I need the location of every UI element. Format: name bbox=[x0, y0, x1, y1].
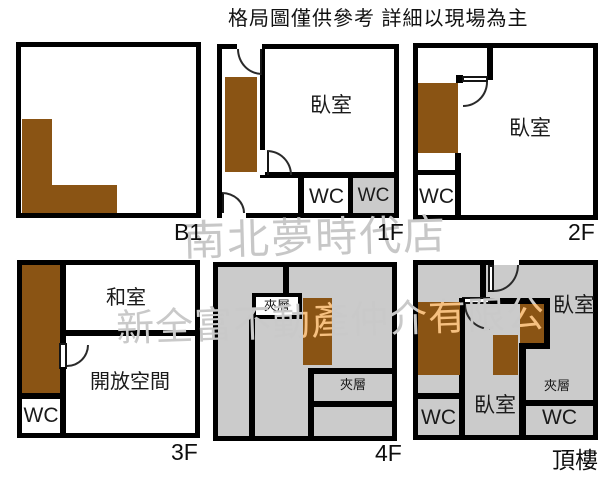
wall bbox=[480, 265, 486, 298]
staircase bbox=[418, 302, 460, 375]
room-label-bedroom-top: 臥室 bbox=[524, 295, 615, 317]
door-leaf bbox=[59, 343, 67, 369]
floor-label-4f: 4F bbox=[375, 440, 402, 467]
staircase bbox=[22, 265, 60, 393]
door-swing-icon bbox=[267, 150, 292, 175]
staircase bbox=[418, 83, 458, 153]
door-leaf bbox=[462, 297, 490, 304]
staircase bbox=[225, 77, 257, 172]
floor-plan-1f: 臥室 WC WC bbox=[217, 44, 399, 218]
staircase bbox=[22, 185, 117, 213]
room-label-wc: WC bbox=[418, 186, 455, 208]
floor-label-roof: 頂樓 bbox=[552, 441, 598, 475]
floor-label-3f: 3F bbox=[171, 439, 198, 466]
floor-plan-b1 bbox=[16, 42, 201, 218]
room-label-bedroom: 臥室 bbox=[480, 118, 580, 140]
wall bbox=[298, 172, 304, 213]
room-label-wc-left: WC bbox=[305, 186, 348, 208]
room-label-mezzanine-upper: 夾層 bbox=[264, 298, 290, 313]
room-label-wc-right: WC bbox=[353, 186, 394, 206]
door-swing-icon bbox=[222, 192, 245, 213]
floor-plan-4f: 夾層 夾層 bbox=[213, 262, 397, 441]
wall bbox=[314, 401, 392, 407]
room-label-tatami: 和室 bbox=[76, 288, 176, 309]
door-swing-icon bbox=[237, 49, 262, 75]
wall bbox=[455, 153, 461, 215]
door-swing-icon bbox=[463, 82, 488, 107]
staircase bbox=[303, 298, 332, 365]
floor-label-1f: 1F bbox=[377, 219, 404, 246]
wall bbox=[60, 330, 195, 336]
page-title: 格局圖僅供參考 詳細以現場為主 bbox=[228, 2, 529, 31]
room-label-open-space: 開放空間 bbox=[60, 372, 200, 393]
floor-plan-2f: 臥室 WC bbox=[413, 43, 598, 220]
room-label-wc-right: WC bbox=[526, 407, 593, 429]
floor-label-2f: 2F bbox=[568, 219, 595, 246]
door-swing-icon bbox=[67, 345, 89, 367]
door-swing-icon bbox=[494, 265, 519, 292]
wall bbox=[418, 170, 456, 175]
floor-plan-roof: 臥室 臥室 夾層 WC WC bbox=[413, 260, 598, 440]
wall bbox=[308, 368, 392, 374]
wall bbox=[249, 316, 255, 436]
wall bbox=[22, 393, 66, 399]
door-swing-icon bbox=[464, 304, 490, 330]
door-opening bbox=[222, 213, 246, 218]
wall bbox=[283, 267, 289, 294]
mezzanine-box: 夾層 bbox=[252, 293, 302, 319]
room-label-wc-left: WC bbox=[418, 407, 459, 429]
room-label-mezzanine: 夾層 bbox=[517, 379, 597, 393]
staircase bbox=[493, 335, 518, 375]
room-label-mezzanine-lower: 夾層 bbox=[313, 378, 393, 392]
door-opening bbox=[260, 150, 265, 175]
floor-label-b1: B1 bbox=[174, 219, 202, 246]
room-label-bedroom: 臥室 bbox=[281, 95, 381, 117]
floor-plan-3f: 和室 開放空間 WC bbox=[17, 260, 200, 438]
room-label-wc: WC bbox=[22, 405, 60, 427]
